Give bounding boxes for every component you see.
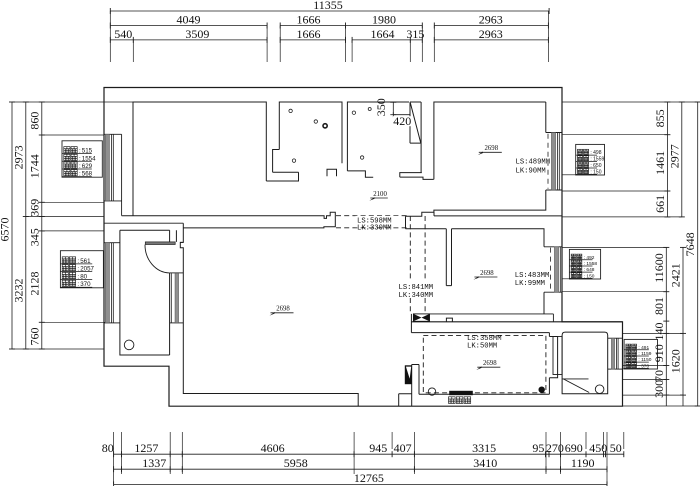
svg-text::: : (590, 163, 591, 169)
svg-text:540: 540 (114, 27, 132, 41)
svg-text:860: 860 (27, 112, 41, 130)
svg-text:315: 315 (406, 27, 424, 41)
svg-text::: : (77, 258, 79, 265)
svg-text:50: 50 (610, 441, 622, 455)
svg-text:2963: 2963 (479, 27, 503, 41)
svg-text:420: 420 (393, 114, 411, 128)
svg-text::: : (79, 171, 81, 178)
svg-text:1664: 1664 (371, 27, 395, 41)
svg-text:6570: 6570 (0, 218, 12, 242)
svg-text::: : (638, 346, 639, 351)
svg-text:LK:50MM: LK:50MM (467, 342, 497, 350)
svg-text:1150: 1150 (641, 357, 652, 363)
svg-text:LS:483MM: LS:483MM (515, 272, 550, 280)
svg-text:855: 855 (653, 109, 667, 127)
svg-text:5958: 5958 (284, 456, 308, 470)
svg-text:629: 629 (82, 163, 93, 170)
svg-text:LK:340MM: LK:340MM (399, 292, 434, 300)
svg-text::: : (77, 281, 79, 288)
svg-text:LK:90MM: LK:90MM (516, 167, 546, 175)
svg-text::: : (638, 352, 639, 357)
svg-text:4049: 4049 (177, 13, 201, 27)
svg-text:690: 690 (565, 441, 583, 455)
svg-text:1980: 1980 (372, 13, 396, 27)
svg-text:7648: 7648 (683, 232, 697, 256)
svg-text::: : (584, 274, 585, 279)
svg-text::: : (584, 256, 585, 261)
svg-text:2698: 2698 (480, 270, 494, 277)
svg-text::: : (590, 169, 591, 175)
svg-text:492: 492 (586, 255, 594, 261)
svg-text:3509: 3509 (185, 27, 209, 41)
svg-text::: : (77, 266, 79, 273)
svg-text:561: 561 (80, 258, 91, 265)
svg-text:1620: 1620 (669, 349, 683, 373)
svg-text:760: 760 (27, 328, 41, 346)
svg-text:568: 568 (82, 171, 93, 178)
svg-text:11600: 11600 (652, 253, 666, 283)
svg-text:801: 801 (652, 297, 666, 315)
svg-text:140: 140 (652, 323, 666, 341)
svg-text:3315: 3315 (472, 441, 496, 455)
svg-text:80: 80 (102, 441, 114, 455)
svg-text:498: 498 (593, 150, 602, 156)
svg-text::: : (584, 262, 585, 267)
svg-text:2977: 2977 (667, 144, 681, 168)
svg-text:LS:489MM: LS:489MM (516, 159, 551, 167)
svg-text:1190: 1190 (571, 456, 595, 470)
svg-text:648: 648 (586, 267, 594, 273)
svg-text:3232: 3232 (11, 279, 25, 303)
svg-text:1666: 1666 (297, 27, 321, 41)
svg-text:300: 300 (652, 380, 666, 398)
svg-text:1257: 1257 (134, 441, 158, 455)
svg-text::: : (77, 273, 79, 280)
svg-text:270: 270 (546, 441, 564, 455)
svg-text:345: 345 (27, 228, 41, 246)
svg-text:1666: 1666 (297, 13, 321, 27)
svg-text:2100: 2100 (373, 191, 387, 198)
svg-text:1159: 1159 (641, 351, 652, 357)
svg-text::: : (590, 157, 591, 163)
svg-text::: : (79, 148, 81, 155)
svg-text:12765: 12765 (354, 471, 384, 485)
svg-text:370: 370 (80, 281, 91, 288)
svg-text:2698: 2698 (485, 145, 499, 152)
svg-text:11355: 11355 (313, 0, 343, 12)
svg-text:2698: 2698 (276, 306, 290, 313)
svg-text:LK:99MM: LK:99MM (515, 280, 545, 288)
svg-text:370: 370 (641, 363, 649, 369)
svg-text:945: 945 (369, 441, 387, 455)
svg-text::: : (79, 163, 81, 170)
svg-text:LK:330MM: LK:330MM (357, 224, 392, 232)
svg-text:407: 407 (394, 441, 412, 455)
svg-text:1554: 1554 (82, 155, 96, 162)
svg-text:491: 491 (641, 345, 649, 351)
svg-text:369: 369 (27, 199, 41, 217)
svg-text::: : (590, 150, 591, 156)
svg-text::: : (79, 155, 81, 162)
svg-text:661: 661 (653, 195, 667, 213)
svg-text:350: 350 (374, 98, 388, 116)
svg-text:1461: 1461 (653, 151, 667, 175)
svg-text:2698: 2698 (483, 360, 497, 367)
svg-text:910: 910 (652, 344, 666, 362)
svg-text:150: 150 (593, 169, 602, 175)
svg-text::: : (584, 268, 585, 273)
svg-text:2421: 2421 (669, 263, 683, 287)
svg-text:450: 450 (589, 441, 607, 455)
svg-text:3410: 3410 (473, 456, 497, 470)
svg-text:150: 150 (586, 273, 594, 279)
svg-text:1744: 1744 (27, 154, 41, 178)
svg-text:1558: 1558 (586, 261, 597, 267)
svg-text:2963: 2963 (479, 13, 503, 27)
svg-text:95: 95 (532, 441, 544, 455)
svg-text:2128: 2128 (27, 272, 41, 296)
svg-text:4606: 4606 (261, 441, 285, 455)
svg-text:1337: 1337 (142, 456, 166, 470)
svg-text:LS:841MM: LS:841MM (399, 284, 434, 292)
svg-text:650: 650 (593, 163, 602, 169)
svg-text::: : (638, 358, 639, 363)
svg-text:80: 80 (80, 273, 87, 280)
svg-text:2057: 2057 (80, 266, 94, 273)
svg-text:1559: 1559 (593, 157, 604, 163)
svg-text:2973: 2973 (11, 145, 25, 169)
svg-text:515: 515 (82, 148, 93, 155)
